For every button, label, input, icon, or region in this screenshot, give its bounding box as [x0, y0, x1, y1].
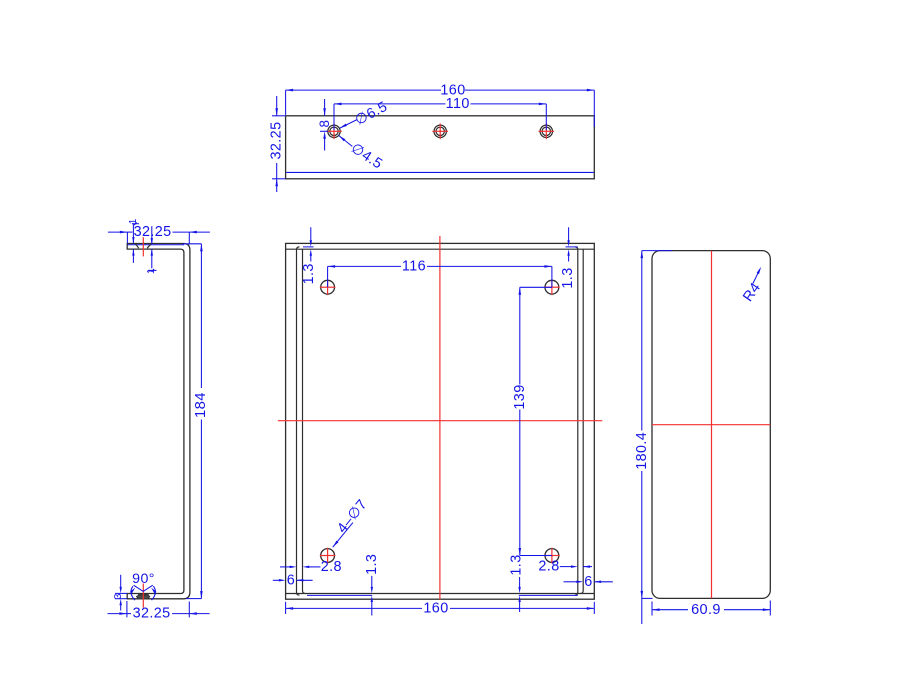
- svg-text:160: 160: [423, 601, 448, 617]
- svg-text:1.3: 1.3: [364, 554, 380, 575]
- svg-text:60.9: 60.9: [691, 602, 721, 618]
- svg-text:110: 110: [446, 96, 470, 112]
- svg-text:1.3: 1.3: [301, 263, 317, 284]
- svg-text:32.25: 32.25: [134, 224, 172, 240]
- svg-text:184: 184: [193, 392, 209, 418]
- svg-text:32.25: 32.25: [133, 606, 171, 622]
- svg-text:6: 6: [287, 573, 295, 589]
- svg-text:2.8: 2.8: [321, 559, 342, 575]
- svg-text:180.4: 180.4: [634, 432, 650, 470]
- svg-text:1: 1: [146, 268, 157, 274]
- svg-text:90°: 90°: [132, 571, 155, 587]
- svg-text:139: 139: [512, 384, 528, 409]
- svg-text:1.3: 1.3: [508, 554, 524, 575]
- svg-text:1.3: 1.3: [560, 267, 576, 288]
- svg-text:6: 6: [584, 574, 592, 590]
- svg-text:8: 8: [317, 120, 332, 128]
- svg-text:116: 116: [402, 259, 426, 275]
- svg-text:2.8: 2.8: [538, 559, 559, 575]
- svg-text:32.25: 32.25: [268, 121, 284, 159]
